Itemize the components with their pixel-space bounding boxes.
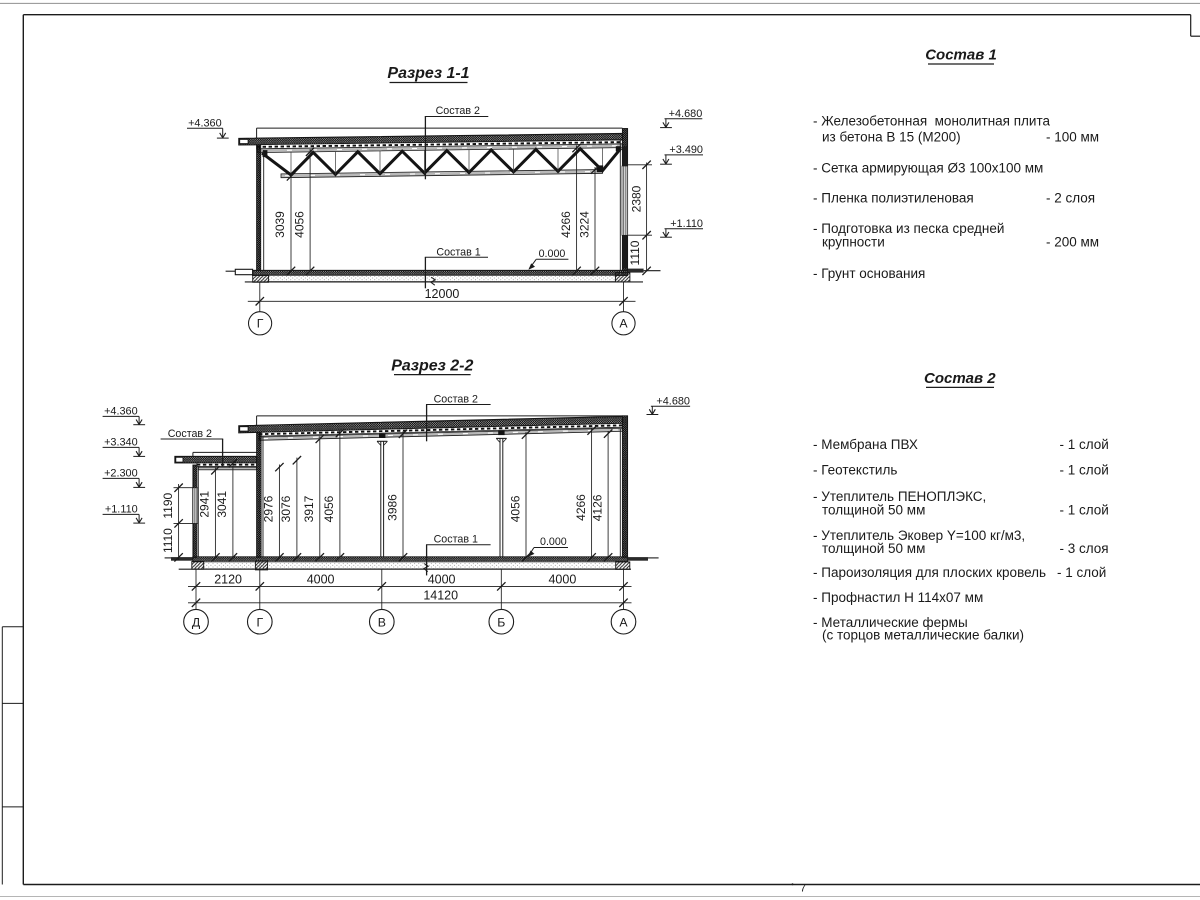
svg-text:Д: Д bbox=[192, 615, 201, 629]
svg-text:крупности: крупности bbox=[822, 235, 885, 250]
svg-text:- 3 слоя: - 3 слоя bbox=[1060, 541, 1109, 556]
svg-text:+2.300: +2.300 bbox=[104, 467, 138, 479]
svg-text:+4.680: +4.680 bbox=[669, 108, 703, 120]
svg-text:Г: Г bbox=[257, 317, 264, 331]
svg-text:2941: 2941 bbox=[198, 491, 212, 518]
svg-text:1110: 1110 bbox=[161, 528, 175, 553]
svg-text:2380: 2380 bbox=[629, 185, 643, 212]
svg-text:+4.360: +4.360 bbox=[188, 117, 222, 129]
svg-text:- Геотекстиль: - Геотекстиль bbox=[813, 463, 897, 478]
svg-text:+1.110: +1.110 bbox=[670, 218, 703, 230]
svg-text:- Пароизоляция для плоских кро: - Пароизоляция для плоских кровель bbox=[813, 565, 1046, 580]
svg-text:- Грунт основания: - Грунт основания bbox=[813, 266, 925, 281]
svg-text:4000: 4000 bbox=[307, 572, 335, 586]
svg-text:Состав 2: Состав 2 bbox=[924, 370, 996, 387]
svg-text:- Мембрана ПВХ: - Мембрана ПВХ bbox=[813, 437, 918, 452]
svg-text:Г: Г bbox=[256, 615, 263, 629]
svg-text:3224: 3224 bbox=[578, 211, 592, 238]
svg-text:1190: 1190 bbox=[161, 492, 175, 518]
svg-text:4056: 4056 bbox=[322, 495, 336, 522]
svg-text:1110: 1110 bbox=[628, 240, 642, 265]
svg-text:Состав 2: Состав 2 bbox=[434, 394, 478, 406]
svg-text:В: В bbox=[378, 615, 386, 629]
svg-text:- 200 мм: - 200 мм bbox=[1046, 235, 1099, 250]
svg-text:0.000: 0.000 bbox=[539, 248, 566, 260]
svg-text:+1.110: +1.110 bbox=[105, 503, 138, 515]
svg-text:- 1 слой: - 1 слой bbox=[1060, 463, 1109, 478]
svg-text:из бетона В 15 (М200): из бетона В 15 (М200) bbox=[822, 129, 961, 144]
svg-text:- 1 слой: - 1 слой bbox=[1060, 437, 1109, 452]
svg-text:3041: 3041 bbox=[215, 491, 229, 518]
svg-text:Состав 1: Состав 1 bbox=[434, 534, 478, 546]
svg-text:толщиной 50 мм: толщиной 50 мм bbox=[822, 503, 925, 518]
svg-text:- Железобетонная монолитная п: - Железобетонная монолитная плита bbox=[813, 114, 1050, 129]
svg-text:(с торцов металлические балки): (с торцов металлические балки) bbox=[822, 628, 1024, 643]
svg-text:14120: 14120 bbox=[423, 589, 458, 603]
svg-text:- Профнастил Н 114х07 мм: - Профнастил Н 114х07 мм bbox=[813, 590, 983, 605]
svg-text:- 2 слоя: - 2 слоя bbox=[1046, 191, 1095, 206]
svg-text:- Сетка армирующая Ø3 100х100: - Сетка армирующая Ø3 100х100 мм bbox=[813, 161, 1043, 176]
svg-text:+4.360: +4.360 bbox=[104, 405, 138, 417]
svg-text:- Пленка полиэтиленовая: - Пленка полиэтиленовая bbox=[813, 191, 974, 206]
svg-text:толщиной 50 мм: толщиной 50 мм bbox=[822, 541, 925, 556]
svg-text:Состав 1: Состав 1 bbox=[436, 246, 480, 258]
svg-text:Состав 2: Состав 2 bbox=[168, 428, 212, 440]
svg-text:4266: 4266 bbox=[559, 211, 573, 238]
svg-text:4126: 4126 bbox=[590, 494, 604, 521]
svg-text:4056: 4056 bbox=[508, 495, 522, 522]
svg-text:4056: 4056 bbox=[293, 211, 307, 238]
svg-text:2976: 2976 bbox=[262, 495, 276, 522]
svg-text:Разрез 2-2: Разрез 2-2 bbox=[391, 358, 473, 375]
svg-text:+3.490: +3.490 bbox=[669, 144, 703, 156]
svg-text:- 1 слой: - 1 слой bbox=[1057, 565, 1106, 580]
svg-text:Состав 2: Состав 2 bbox=[436, 105, 480, 117]
svg-text:2120: 2120 bbox=[214, 572, 242, 586]
svg-text:+4.680: +4.680 bbox=[656, 395, 690, 407]
svg-text:Разрез 1-1: Разрез 1-1 bbox=[387, 65, 469, 82]
svg-text:3076: 3076 bbox=[279, 495, 293, 522]
svg-text:- 100 мм: - 100 мм bbox=[1046, 129, 1099, 144]
svg-text:А: А bbox=[619, 317, 628, 331]
svg-text:4000: 4000 bbox=[548, 572, 576, 586]
svg-text:А: А bbox=[619, 615, 628, 629]
svg-text:12000: 12000 bbox=[425, 287, 460, 301]
svg-text:3986: 3986 bbox=[385, 494, 399, 521]
svg-text:Состав 1: Состав 1 bbox=[925, 47, 997, 64]
svg-text:+3.340: +3.340 bbox=[104, 436, 138, 448]
svg-text:4266: 4266 bbox=[574, 494, 588, 521]
svg-text:3917: 3917 bbox=[302, 495, 316, 522]
svg-text:Б: Б bbox=[497, 615, 505, 629]
svg-text:7: 7 bbox=[800, 883, 806, 895]
svg-text:0.000: 0.000 bbox=[540, 536, 567, 548]
svg-text:- 1 слой: - 1 слой bbox=[1060, 503, 1109, 518]
svg-text:3039: 3039 bbox=[273, 211, 287, 238]
svg-text:4000: 4000 bbox=[428, 572, 456, 586]
